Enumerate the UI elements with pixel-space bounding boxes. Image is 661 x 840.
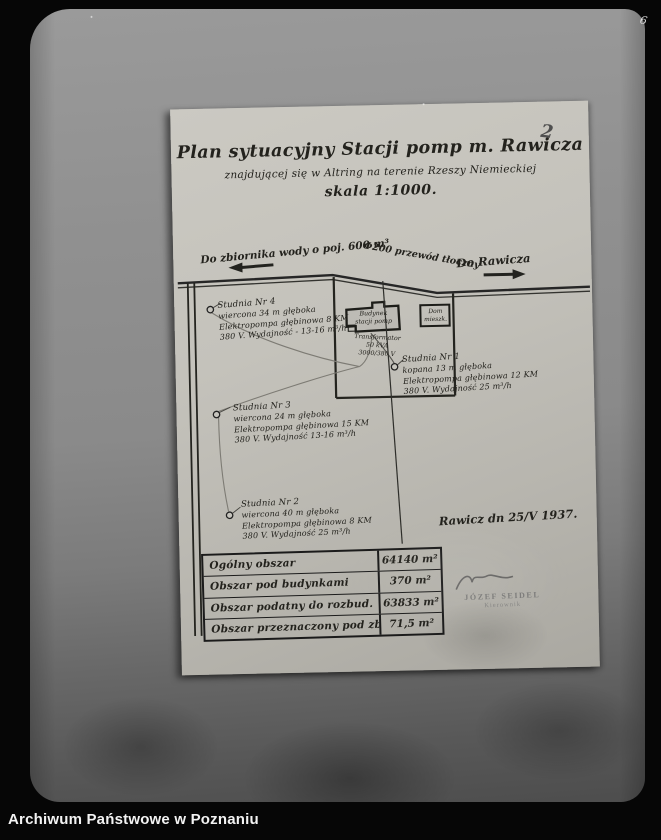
document-paper: Plan sytuacyjny Stacji pomp m. Rawicza z…	[170, 101, 600, 676]
area-row-label: Obszar podatny do rozbud.	[204, 597, 378, 614]
signature-stroke	[456, 575, 513, 590]
well-marker-4	[207, 306, 214, 313]
area-row-label: Ogólny obszar	[203, 555, 377, 572]
house-label-line2: mieszk.	[422, 315, 448, 323]
area-row-label: Obszar przeznaczony pod zbiorn.	[205, 619, 379, 636]
boundary-line-left-inner	[194, 283, 201, 636]
arrow-left-icon	[228, 262, 273, 273]
area-table: Ogólny obszar 64140 m² Obszar pod budynk…	[201, 547, 445, 642]
plate-edge-mark: 6	[639, 13, 649, 27]
well-label-studnia-1: Studnia Nr 1 kopana 13 m głęboka Elektro…	[402, 347, 539, 397]
area-row-label: Obszar pod budynkami	[204, 576, 378, 593]
well-marker-1	[391, 364, 398, 371]
area-row-value: 370 m²	[378, 570, 442, 592]
area-row-value: 63833 m²	[378, 591, 442, 613]
well-marker-3	[213, 411, 220, 418]
area-row-value: 64140 m²	[377, 549, 441, 571]
archive-scan-page: { "photo": { "pencil_page_number": "2", …	[0, 0, 661, 840]
photo-plate: Plan sytuacyjny Stacji pomp m. Rawicza z…	[30, 9, 645, 802]
transformer-label: Transformator 50 kVA 3000/380 V	[353, 333, 402, 359]
pipe-line-well2	[219, 417, 229, 511]
pump-station-label-line2: stacji pomp	[353, 318, 395, 327]
pump-station-label: Budynek stacji pomp	[352, 310, 394, 327]
boundary-line-left-outer	[188, 283, 195, 636]
page-number-pencil: 2	[539, 121, 554, 143]
well-label-studnia-3: Studnia Nr 3 wiercona 24 m głęboka Elekt…	[233, 396, 370, 446]
stamp: JÓZEF SEIDEL Kierownik	[460, 590, 545, 610]
archive-caption: Archiwum Państwowe w Poznaniu	[8, 811, 259, 828]
area-row-value: 71,5 m²	[379, 613, 443, 635]
arrow-right-icon	[484, 269, 526, 280]
well-label-studnia-2: Studnia Nr 2 wiercona 40 m głęboka Elekt…	[241, 494, 373, 542]
well-marker-2	[226, 512, 233, 519]
house-label: Dom mieszk.	[422, 308, 448, 324]
